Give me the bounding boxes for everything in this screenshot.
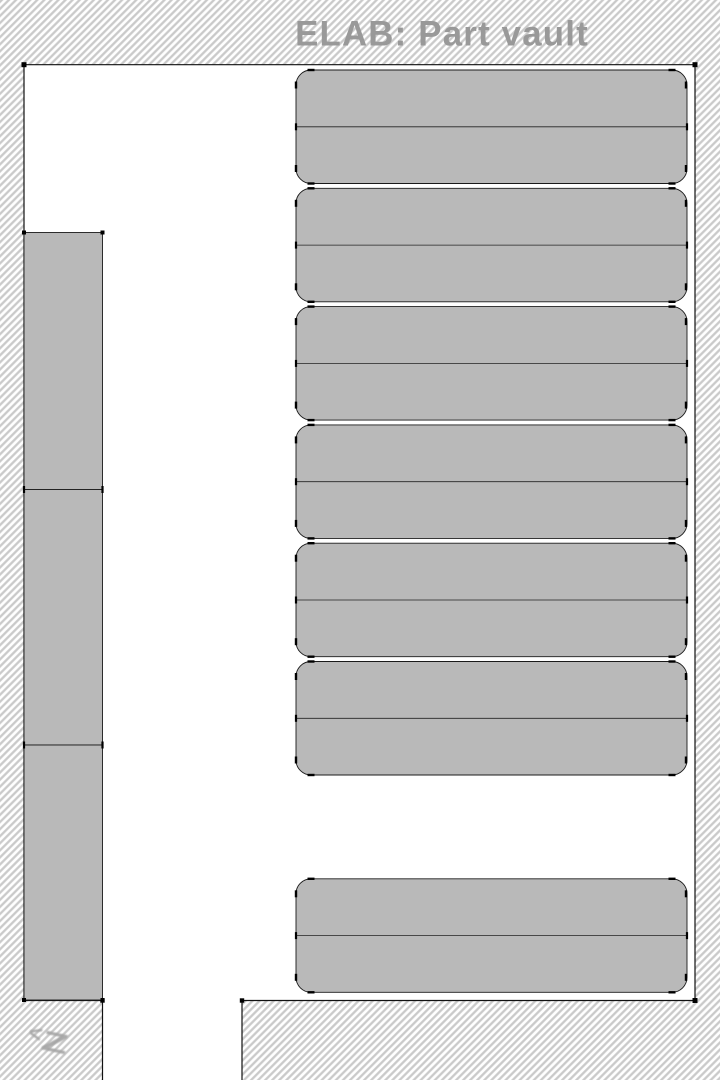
svg-text:ELAB: Part vault: ELAB: Part vault bbox=[295, 15, 589, 54]
